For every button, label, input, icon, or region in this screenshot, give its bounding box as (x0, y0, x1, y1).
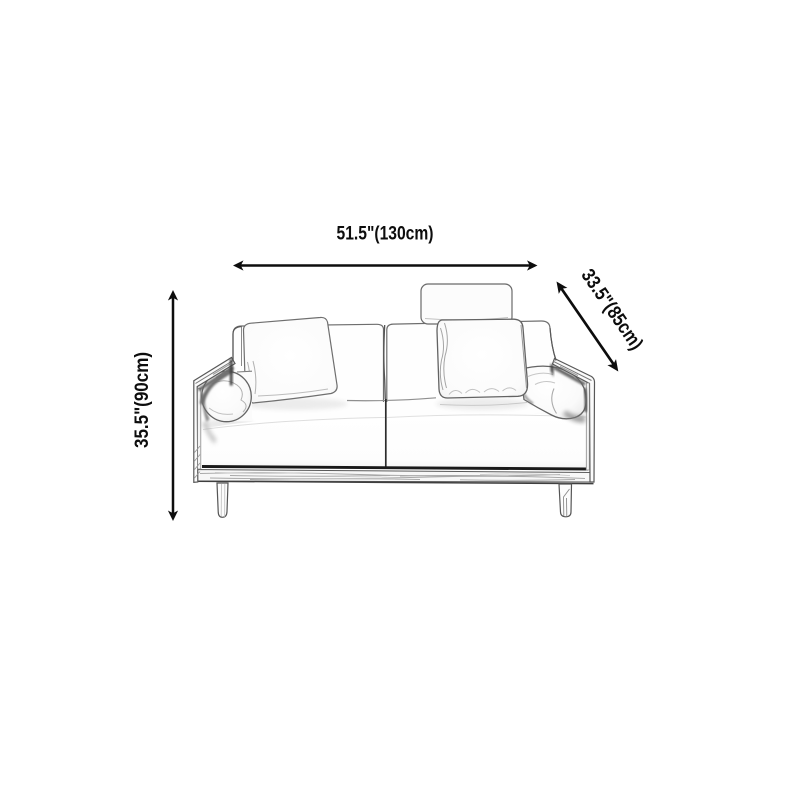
svg-text:35.5"(90cm): 35.5"(90cm) (131, 352, 153, 448)
svg-text:51.5"(130cm): 51.5"(130cm) (337, 223, 434, 245)
